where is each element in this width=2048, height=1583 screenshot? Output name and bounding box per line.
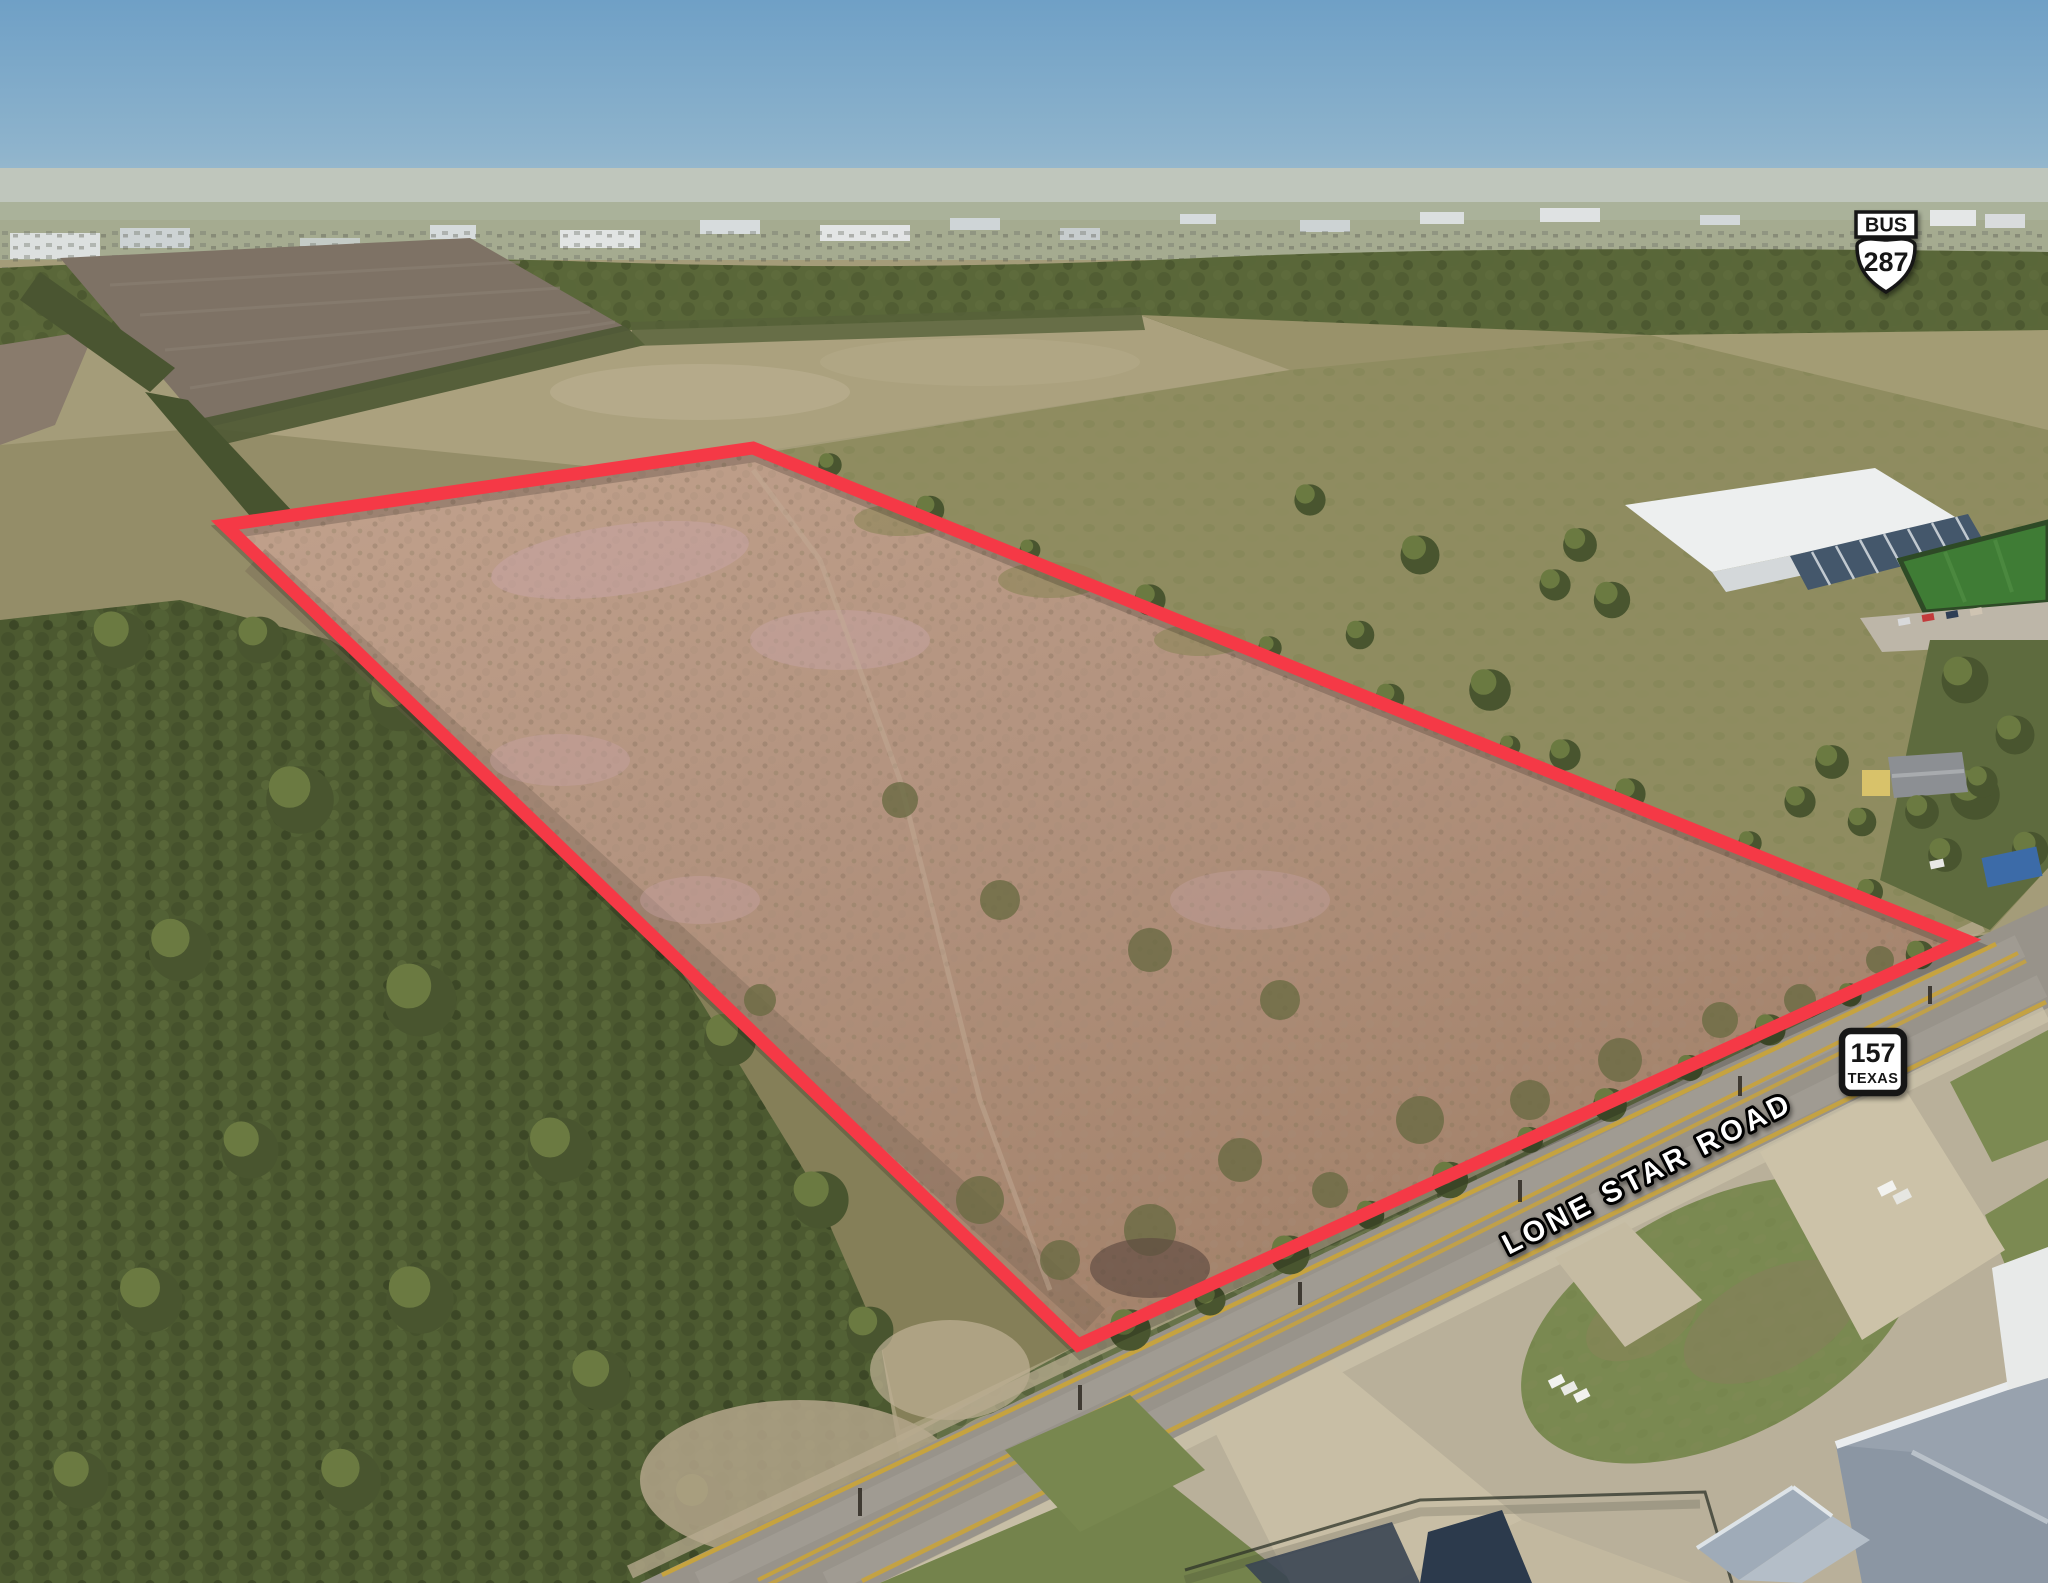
scene: LONE STAR ROAD BUS 287 157 TEXAS <box>0 0 2048 1583</box>
field-light-patch <box>550 364 850 420</box>
state-route-number: 157 <box>1850 1038 1895 1068</box>
texas-157-shield: 157 TEXAS <box>1842 1031 1904 1093</box>
gravel-clearing <box>870 1320 1030 1420</box>
gray-roof-house <box>1888 752 1968 798</box>
bus-banner-text: BUS <box>1865 215 1907 237</box>
yellow-house <box>1862 770 1890 796</box>
state-route-state: TEXAS <box>1848 1071 1899 1087</box>
bus-route-number: 287 <box>1863 247 1908 277</box>
field-light-patch <box>820 338 1140 386</box>
aerial-property-photo: LONE STAR ROAD BUS 287 157 TEXAS <box>0 0 2048 1583</box>
